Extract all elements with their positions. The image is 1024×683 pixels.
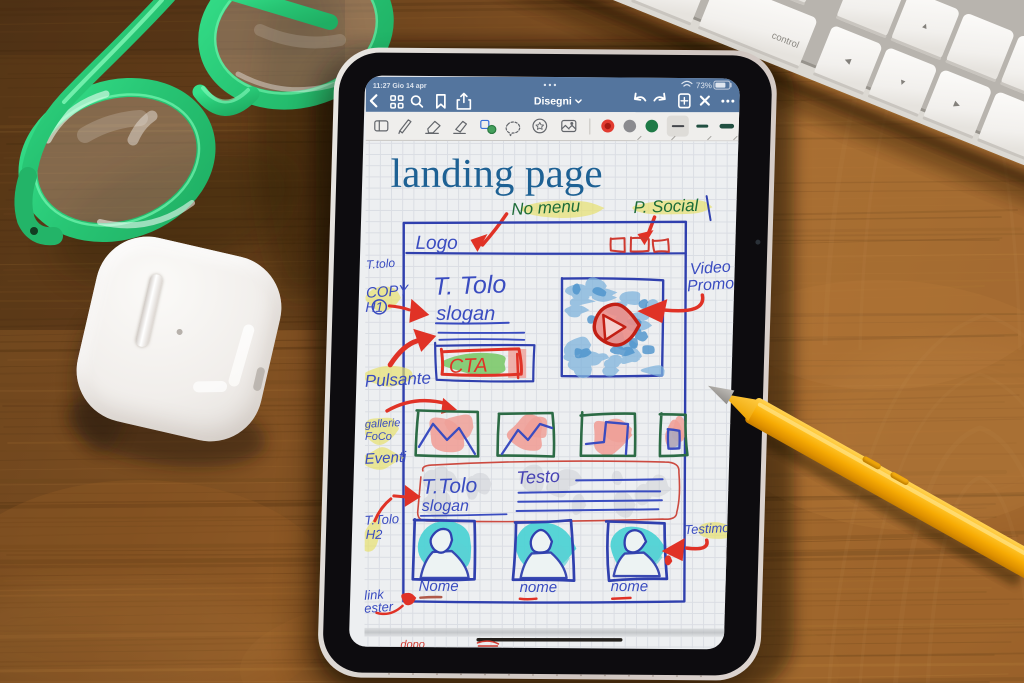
svg-text:No menu: No menu xyxy=(511,196,581,219)
svg-text:Logo: Logo xyxy=(415,233,457,254)
svg-text:slogan: slogan xyxy=(422,498,469,515)
svg-text:T.Tolo: T.Tolo xyxy=(421,474,478,499)
svg-text:P. Social: P. Social xyxy=(633,196,700,217)
svg-text:slogan: slogan xyxy=(436,303,495,325)
svg-text:nome: nome xyxy=(611,578,649,595)
svg-text:Nome: Nome xyxy=(419,578,459,595)
svg-text:nome: nome xyxy=(520,579,558,596)
svg-text:FoCo: FoCo xyxy=(365,431,392,443)
svg-text:landing page: landing page xyxy=(391,150,603,196)
svg-text:H2: H2 xyxy=(366,527,383,542)
svg-text:Eventi: Eventi xyxy=(364,449,407,468)
svg-text:T.Tolo: T.Tolo xyxy=(364,511,399,528)
svg-text:T.tolo: T.tolo xyxy=(366,256,396,272)
svg-text:gallerie: gallerie xyxy=(365,417,401,431)
svg-text:dopo: dopo xyxy=(400,639,425,648)
svg-text:T. Tolo: T. Tolo xyxy=(433,270,507,300)
svg-text:Pulsante: Pulsante xyxy=(364,368,431,390)
svg-text:Promo: Promo xyxy=(686,275,734,295)
svg-text:CTA: CTA xyxy=(449,355,488,378)
svg-text:Testo: Testo xyxy=(516,466,560,488)
